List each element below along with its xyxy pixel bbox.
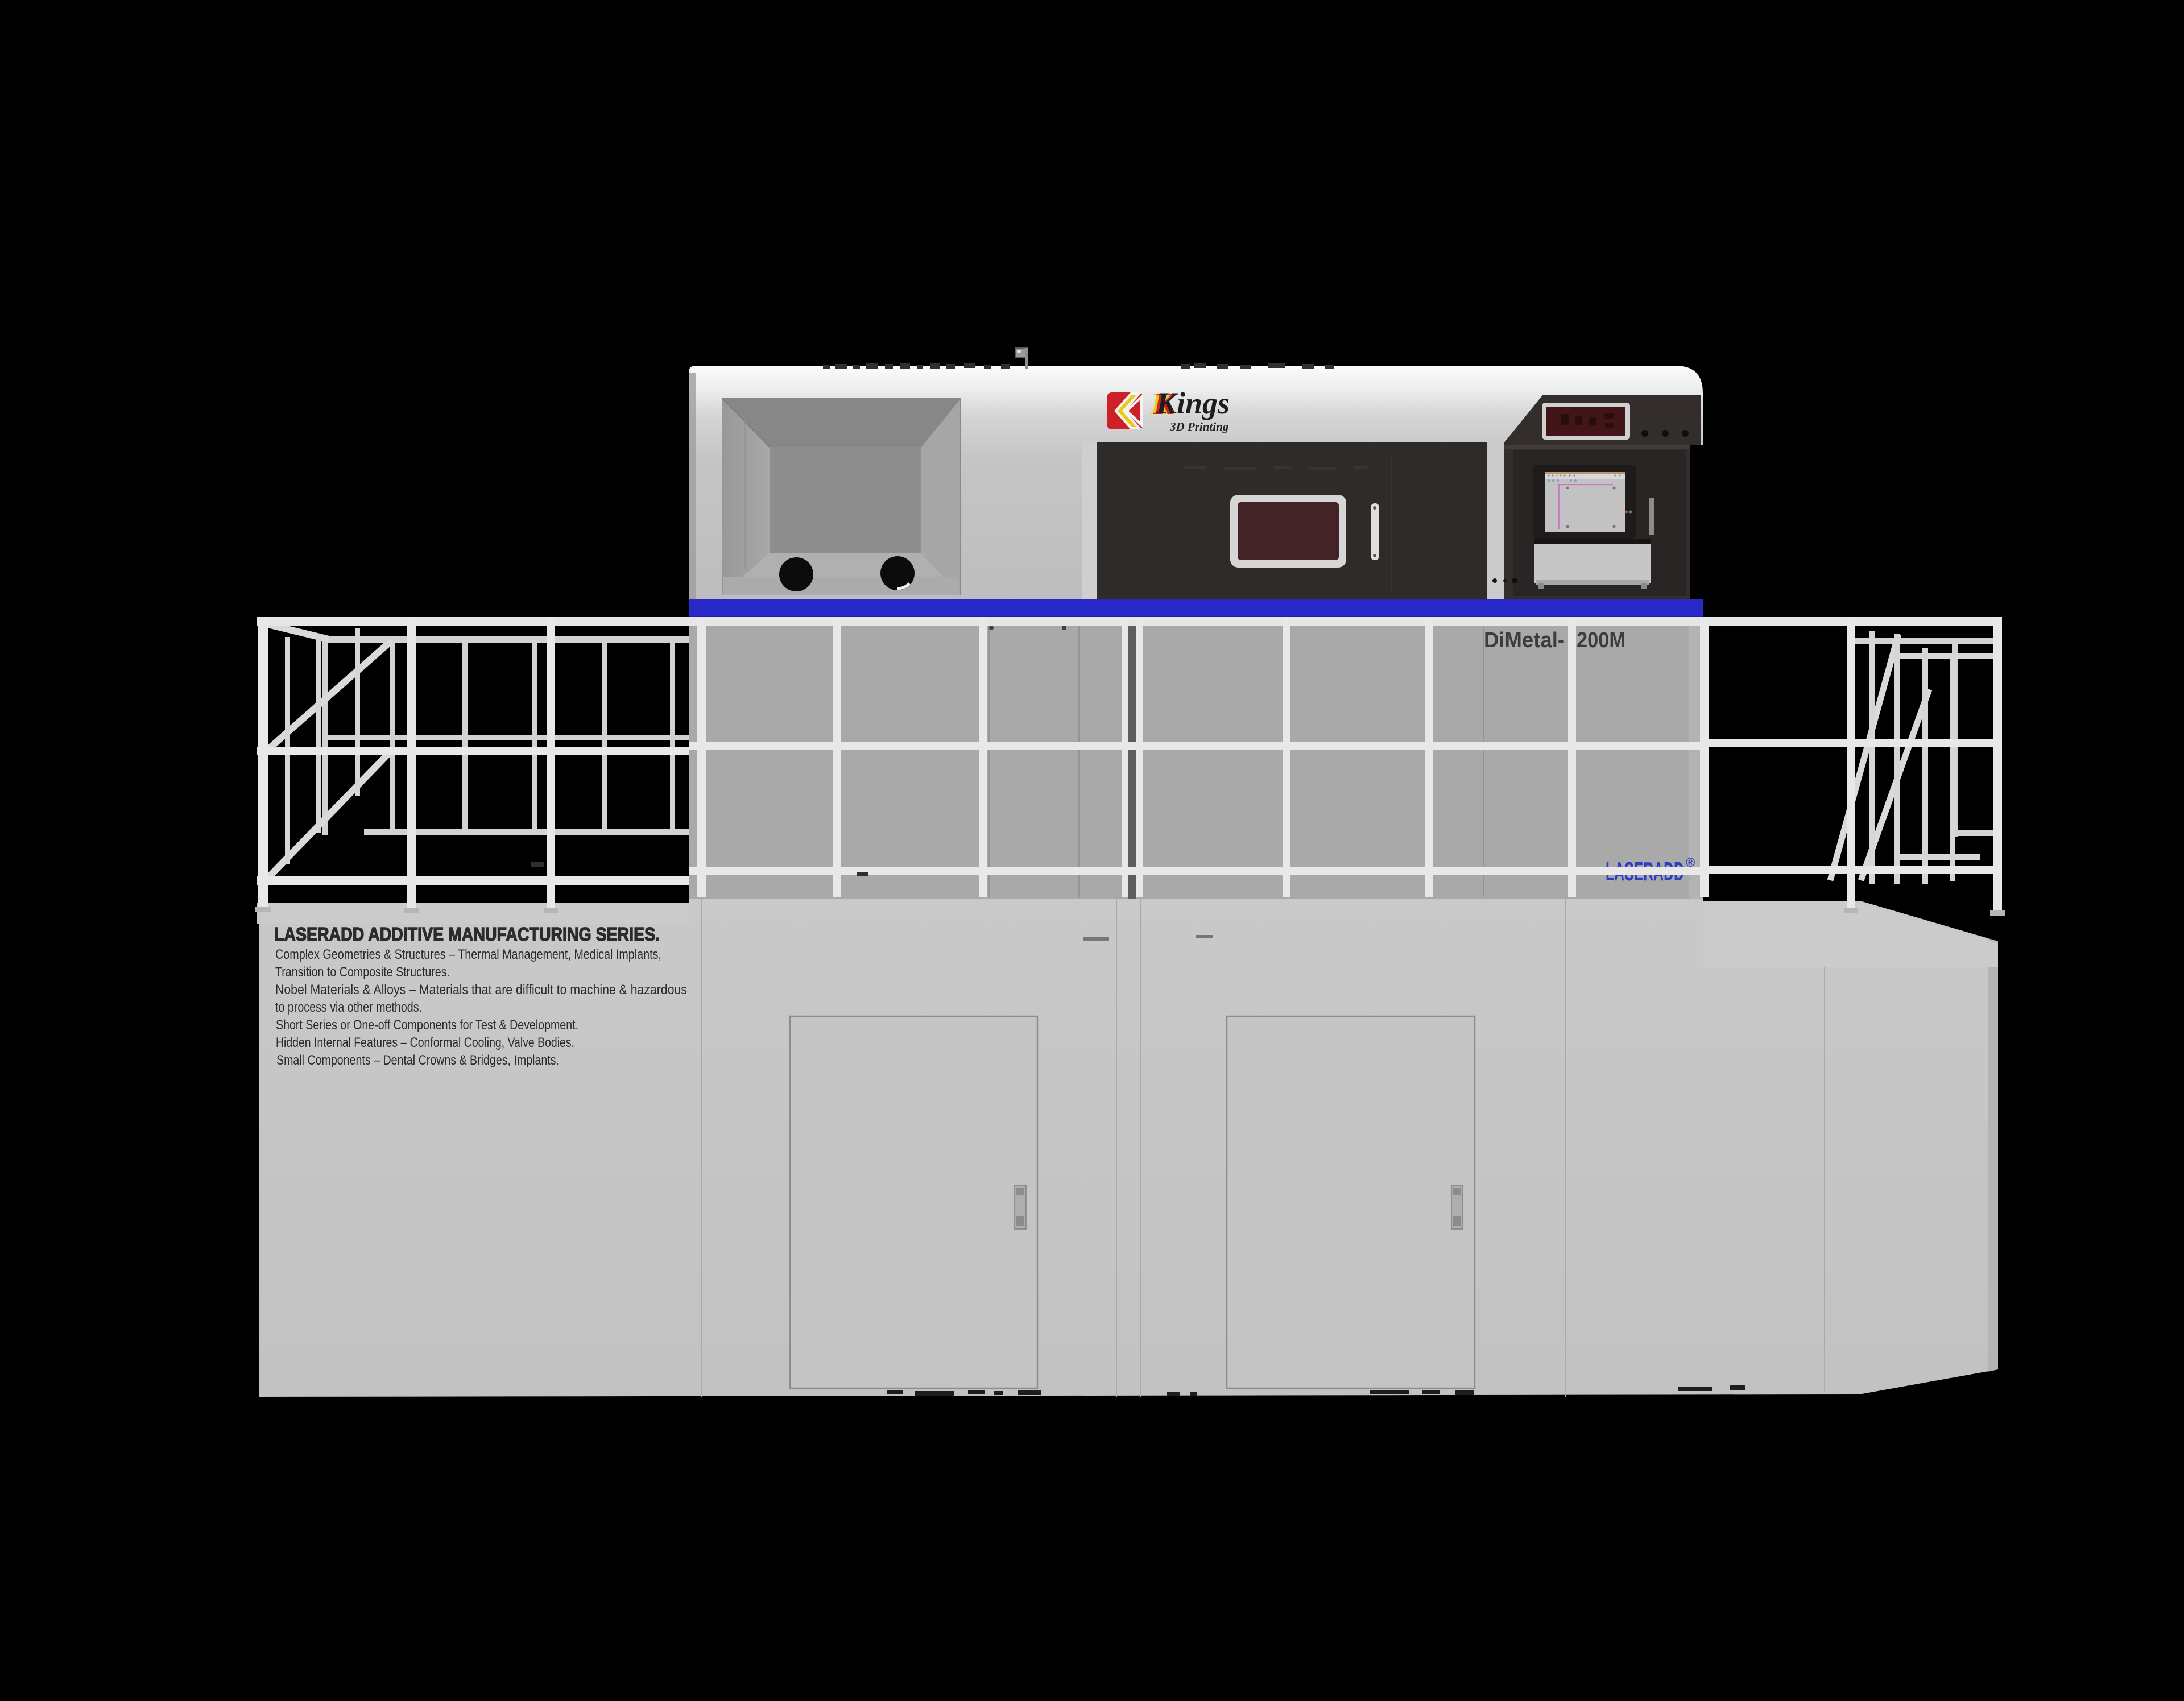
- svg-text:Small Components – Dental Crow: Small Components – Dental Crowns & Bridg…: [276, 1053, 559, 1068]
- svg-text:3D Printing: 3D Printing: [1169, 420, 1228, 433]
- svg-text:Hidden Internal Features – Con: Hidden Internal Features – Conformal Coo…: [276, 1035, 574, 1050]
- svg-text:Complex Geometries & Structure: Complex Geometries & Structures – Therma…: [275, 947, 661, 962]
- svg-text:Kings: Kings: [1156, 386, 1230, 420]
- svg-text:Nobel Materials & Alloys – Mat: Nobel Materials & Alloys – Materials tha…: [275, 982, 687, 998]
- svg-text:to process via other methods.: to process via other methods.: [275, 1000, 422, 1015]
- svg-text:DiMetal-: DiMetal-: [1484, 628, 1565, 652]
- svg-text:Short Series or One-off Compon: Short Series or One-off Components for T…: [276, 1017, 578, 1033]
- svg-text:200M: 200M: [1577, 628, 1625, 652]
- svg-text:Transition to Composite Struct: Transition to Composite Structures.: [275, 965, 450, 980]
- svg-text:LASERADD ADDITIVE MANUFACTURIN: LASERADD ADDITIVE MANUFACTURING SERIES.: [274, 924, 660, 945]
